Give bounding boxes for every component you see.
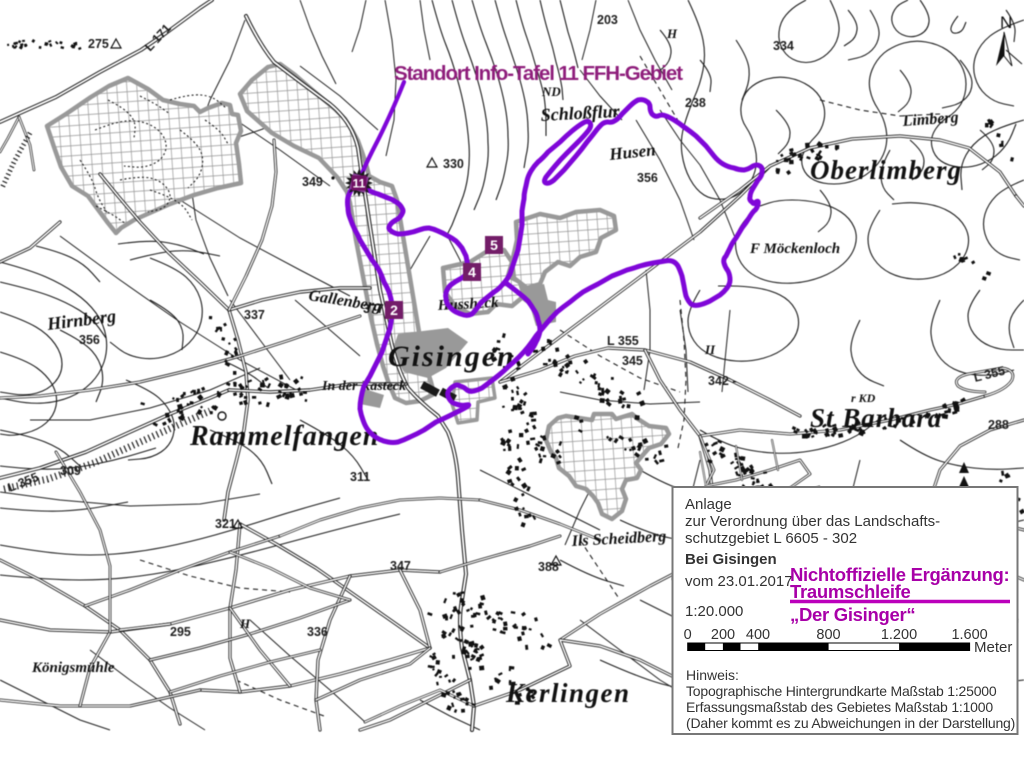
svg-text:203: 203 xyxy=(597,13,618,27)
svg-text:1.200: 1.200 xyxy=(881,627,917,643)
svg-text:356: 356 xyxy=(79,333,100,347)
svg-text:347: 347 xyxy=(390,559,411,573)
svg-text:r KD: r KD xyxy=(851,391,876,405)
svg-text:H: H xyxy=(239,616,251,631)
svg-text:288: 288 xyxy=(988,418,1009,432)
svg-text:388: 388 xyxy=(538,560,559,574)
svg-text:295: 295 xyxy=(170,625,191,639)
svg-text:336: 336 xyxy=(307,625,328,639)
svg-text:St Barbara: St Barbara xyxy=(810,403,942,433)
svg-text:200: 200 xyxy=(711,627,735,643)
svg-text:275: 275 xyxy=(88,37,109,51)
svg-text:Königsmühle: Königsmühle xyxy=(31,660,115,676)
svg-text:2: 2 xyxy=(390,302,398,318)
svg-text:349: 349 xyxy=(302,175,323,189)
svg-text:schutzgebiet L 6605 - 302: schutzgebiet L 6605 - 302 xyxy=(685,530,857,547)
svg-text:238: 238 xyxy=(685,96,706,110)
svg-text:1:20.000: 1:20.000 xyxy=(685,603,743,620)
svg-text:Anlage: Anlage xyxy=(685,496,732,513)
svg-text:Gisingen: Gisingen xyxy=(388,340,516,373)
svg-text:Standort Info-Tafel 11 FFH-Geb: Standort Info-Tafel 11 FFH-Gebiet xyxy=(394,62,683,85)
svg-text:4: 4 xyxy=(468,264,476,280)
svg-text:321: 321 xyxy=(215,517,236,531)
svg-text:„Der Gisinger“: „Der Gisinger“ xyxy=(790,604,915,625)
svg-text:330: 330 xyxy=(443,157,464,171)
svg-text:Traumschleife: Traumschleife xyxy=(790,581,911,602)
svg-text:Erfassungsmaßstab des Gebietes: Erfassungsmaßstab des Gebietes Maßstab 1… xyxy=(686,699,993,715)
svg-text:(Daher kommt es zu Abweichunge: (Daher kommt es zu Abweichungen in der D… xyxy=(686,715,1015,731)
svg-text:Bei Gisingen: Bei Gisingen xyxy=(685,551,777,568)
svg-text:Meter: Meter xyxy=(974,639,1012,656)
svg-text:II: II xyxy=(704,342,716,357)
svg-text:Hinweis:: Hinweis: xyxy=(686,667,739,683)
svg-text:F Möckenloch: F Möckenloch xyxy=(749,241,840,257)
svg-text:0: 0 xyxy=(684,627,692,643)
svg-text:N: N xyxy=(1000,13,1012,32)
svg-text:311: 311 xyxy=(350,470,370,484)
svg-text:337: 337 xyxy=(244,308,265,322)
svg-text:H: H xyxy=(666,26,678,41)
svg-text:345: 345 xyxy=(622,354,643,368)
svg-text:Topographische Hintergrundkart: Topographische Hintergrundkarte Maßstab … xyxy=(686,683,997,699)
svg-text:ND: ND xyxy=(541,84,561,99)
svg-text:342 -: 342 - xyxy=(708,374,737,388)
svg-text:5: 5 xyxy=(490,237,498,253)
svg-text:356: 356 xyxy=(637,171,658,185)
svg-text:L 355: L 355 xyxy=(607,334,639,348)
svg-text:Rammelfangen: Rammelfangen xyxy=(189,421,379,452)
svg-text:vom 23.01.2017: vom 23.01.2017 xyxy=(685,573,793,590)
svg-text:400: 400 xyxy=(746,627,770,643)
svg-text:Oberlimberg: Oberlimberg xyxy=(810,155,962,185)
svg-text:800: 800 xyxy=(816,627,840,643)
svg-text:Kerlingen: Kerlingen xyxy=(505,678,631,708)
svg-text:11: 11 xyxy=(353,177,366,191)
svg-text:zur Verordnung über das Landsc: zur Verordnung über das Landschafts- xyxy=(685,513,940,530)
svg-text:309: 309 xyxy=(60,464,81,478)
svg-text:334: 334 xyxy=(773,39,794,53)
